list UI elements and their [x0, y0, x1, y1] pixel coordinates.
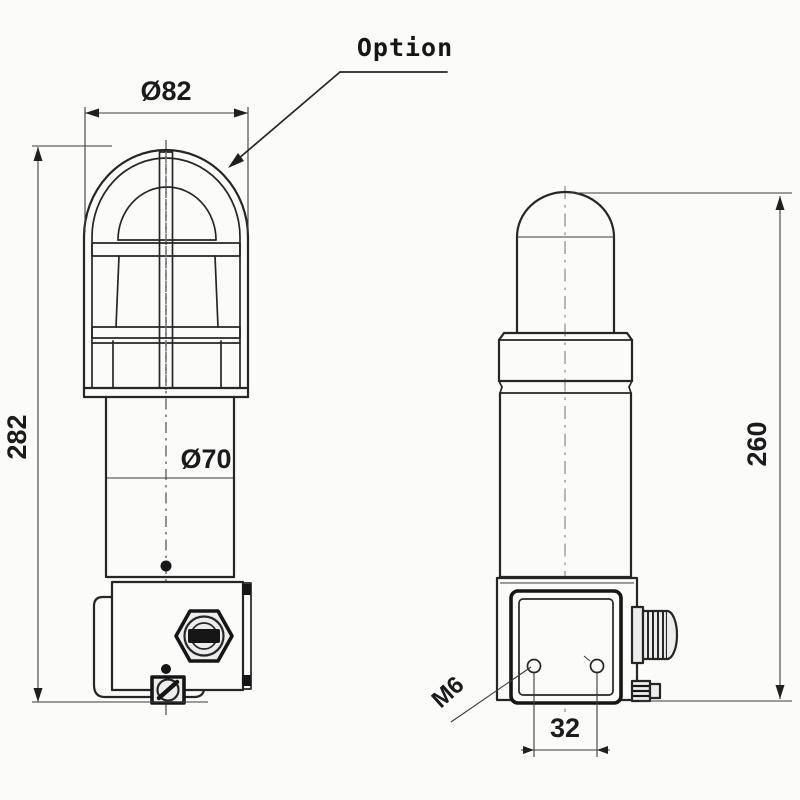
front-view [84, 140, 251, 716]
base-housing-front [112, 561, 251, 704]
label-overall-height: 282 [2, 414, 32, 459]
body-cylinder-front [106, 397, 234, 577]
label-option: Option [357, 33, 453, 62]
flange-tab-top [242, 584, 251, 595]
gland-locknut-side [632, 681, 660, 701]
center-dot-low [161, 664, 171, 674]
dim-body-diameter: Ø70 [107, 444, 233, 478]
bottom-screw [152, 677, 184, 703]
lens-dome-front [113, 187, 221, 388]
label-hole-spacing: 32 [550, 713, 580, 743]
label-cage-diameter: Ø82 [140, 76, 191, 106]
label-body-diameter: Ø70 [180, 444, 231, 474]
center-dot-mid [161, 561, 172, 572]
label-mounting-thread: M6 [427, 671, 470, 713]
drawing-page: Ø82 282 Ø70 260 [0, 0, 800, 800]
cable-gland-side [632, 607, 677, 701]
bracket-plate [511, 591, 621, 703]
cable-gland-front [176, 611, 232, 661]
side-view [497, 186, 677, 712]
mounting-bracket-side [511, 591, 621, 703]
base-flange-front [243, 583, 251, 689]
flange-tab-bottom [242, 675, 251, 686]
callout-option: Option [228, 33, 453, 168]
technical-drawing: Ø82 282 Ø70 260 [0, 0, 800, 800]
label-beacon-height: 260 [742, 421, 772, 466]
